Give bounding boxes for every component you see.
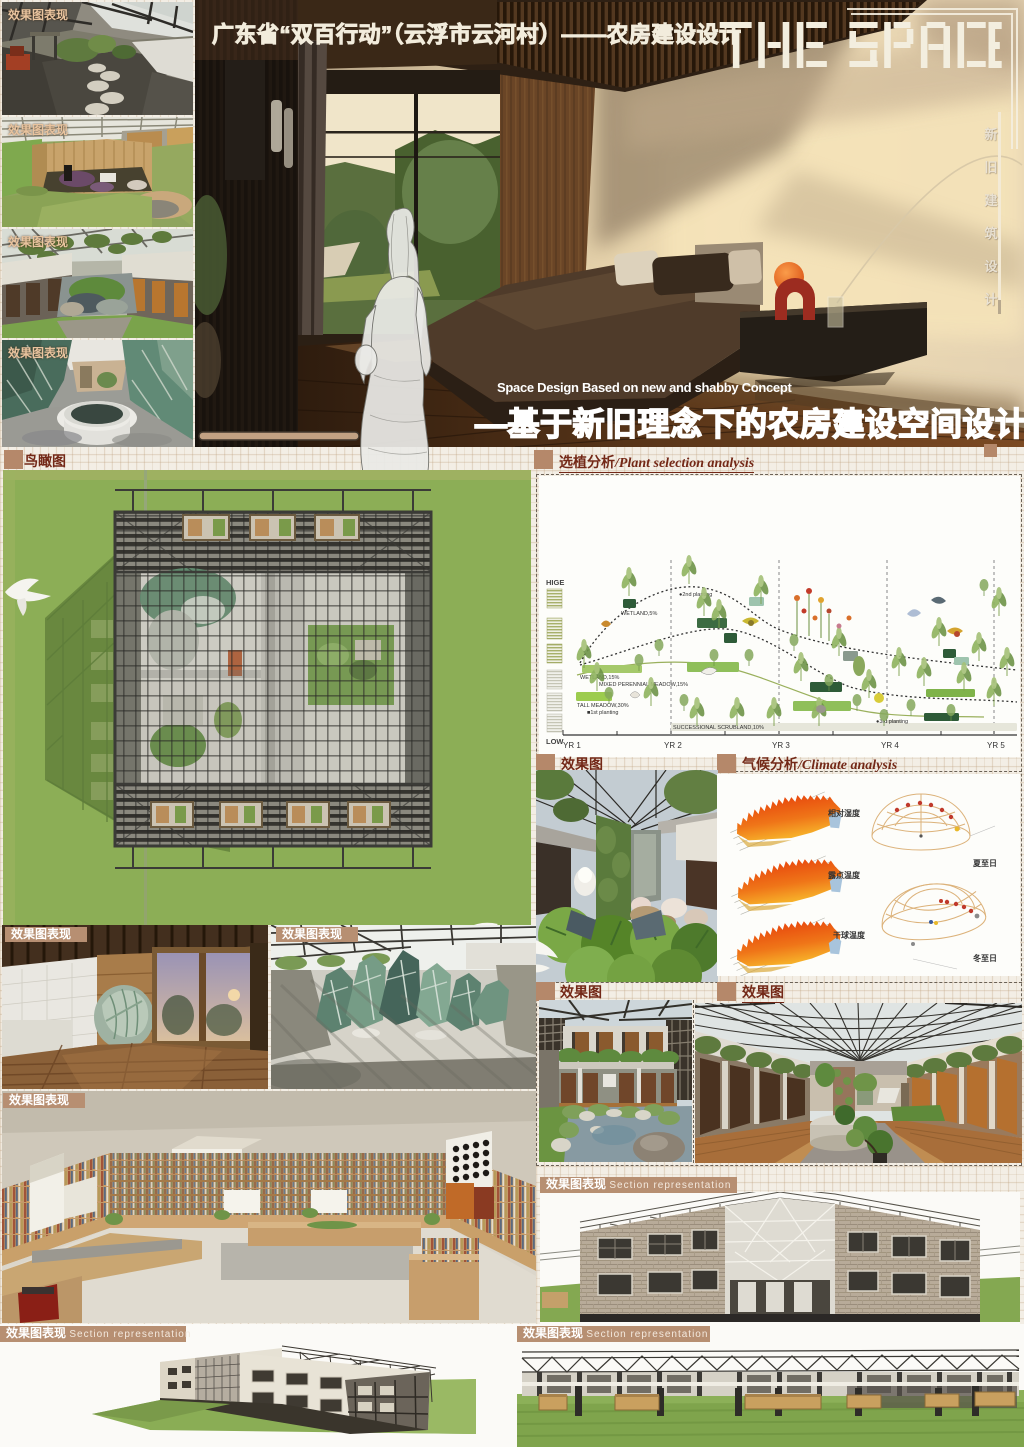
- svg-text:YR 5: YR 5: [987, 741, 1005, 750]
- svg-text:相对湿度: 相对湿度: [828, 808, 861, 818]
- svg-text:SUCCESSIONAL SCRUBLAND,10%: SUCCESSIONAL SCRUBLAND,10%: [673, 725, 764, 731]
- svg-text:■1st planting: ■1st planting: [587, 710, 618, 716]
- svg-text:HIGE: HIGE: [546, 578, 564, 587]
- svg-text:TALL MEADOW,30%: TALL MEADOW,30%: [577, 703, 629, 709]
- svg-text:夏至日: 夏至日: [972, 859, 997, 868]
- svg-text:WETLAND,5%: WETLAND,5%: [621, 611, 657, 617]
- svg-text:冬至日: 冬至日: [973, 953, 997, 963]
- svg-text:YR 2: YR 2: [664, 741, 682, 750]
- svg-text:YR 1: YR 1: [563, 741, 581, 750]
- svg-text:LOW: LOW: [546, 737, 564, 746]
- svg-text:YR 3: YR 3: [772, 741, 790, 750]
- svg-text:干球温度: 干球温度: [833, 930, 866, 940]
- svg-text:YR 4: YR 4: [881, 741, 899, 750]
- svg-text:●3rd planting: ●3rd planting: [876, 719, 908, 725]
- svg-text:露点温度: 露点温度: [828, 870, 861, 880]
- svg-text:MIXED PERENNIAL MEADOW,15%: MIXED PERENNIAL MEADOW,15%: [599, 682, 688, 688]
